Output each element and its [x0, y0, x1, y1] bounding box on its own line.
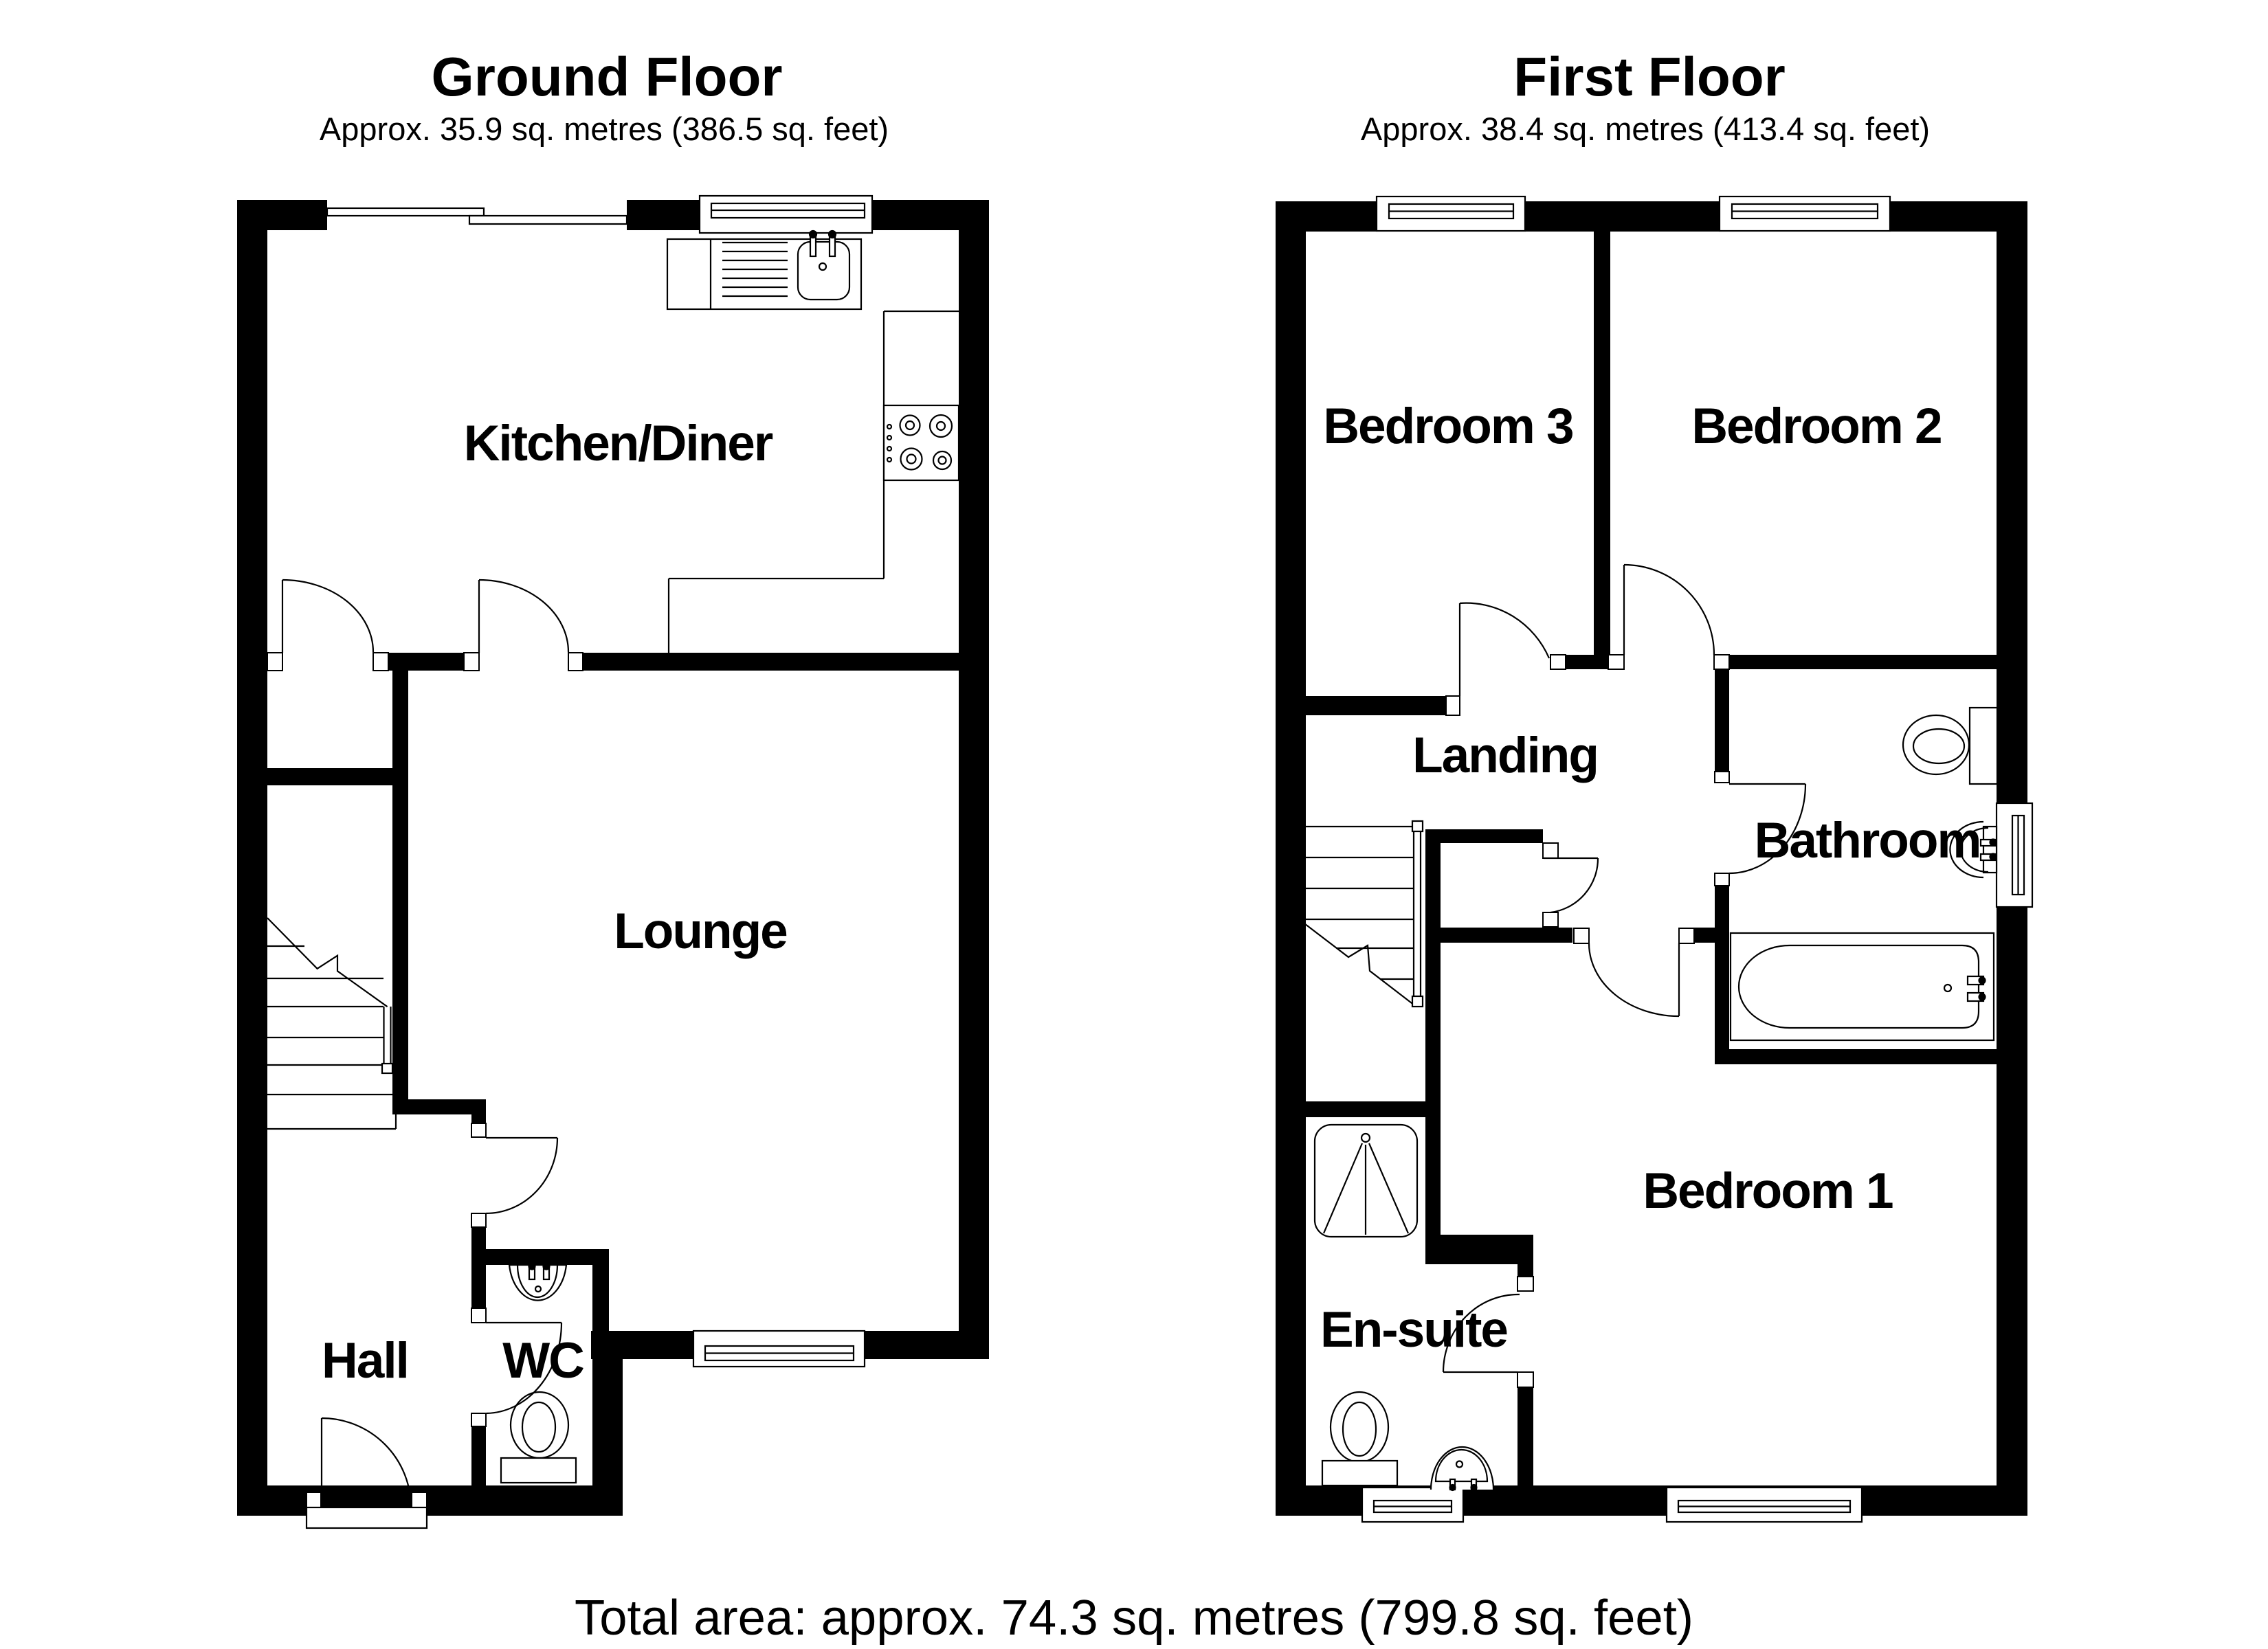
svg-text:Bedroom 3: Bedroom 3 — [1323, 399, 1572, 454]
svg-text:En-suite: En-suite — [1320, 1302, 1507, 1358]
svg-text:Hall: Hall — [322, 1333, 408, 1389]
svg-text:WC: WC — [502, 1333, 583, 1389]
svg-text:Lounge: Lounge — [614, 904, 787, 959]
svg-text:Bedroom 2: Bedroom 2 — [1691, 399, 1941, 454]
svg-text:Approx. 35.9 sq. metres (386.5: Approx. 35.9 sq. metres (386.5 sq. feet) — [320, 111, 889, 147]
svg-text:Kitchen/Diner: Kitchen/Diner — [464, 416, 773, 471]
svg-text:Approx. 38.4 sq. metres (413.4: Approx. 38.4 sq. metres (413.4 sq. feet) — [1361, 111, 1930, 147]
svg-text:Bathroom: Bathroom — [1755, 813, 1981, 868]
svg-text:Bedroom 1: Bedroom 1 — [1643, 1163, 1893, 1219]
svg-text:Landing: Landing — [1412, 728, 1598, 783]
svg-text:Total area: approx. 74.3 sq. m: Total area: approx. 74.3 sq. metres (799… — [575, 1590, 1693, 1646]
svg-text:Ground Floor: Ground Floor — [431, 46, 782, 107]
svg-text:First Floor: First Floor — [1513, 46, 1786, 107]
